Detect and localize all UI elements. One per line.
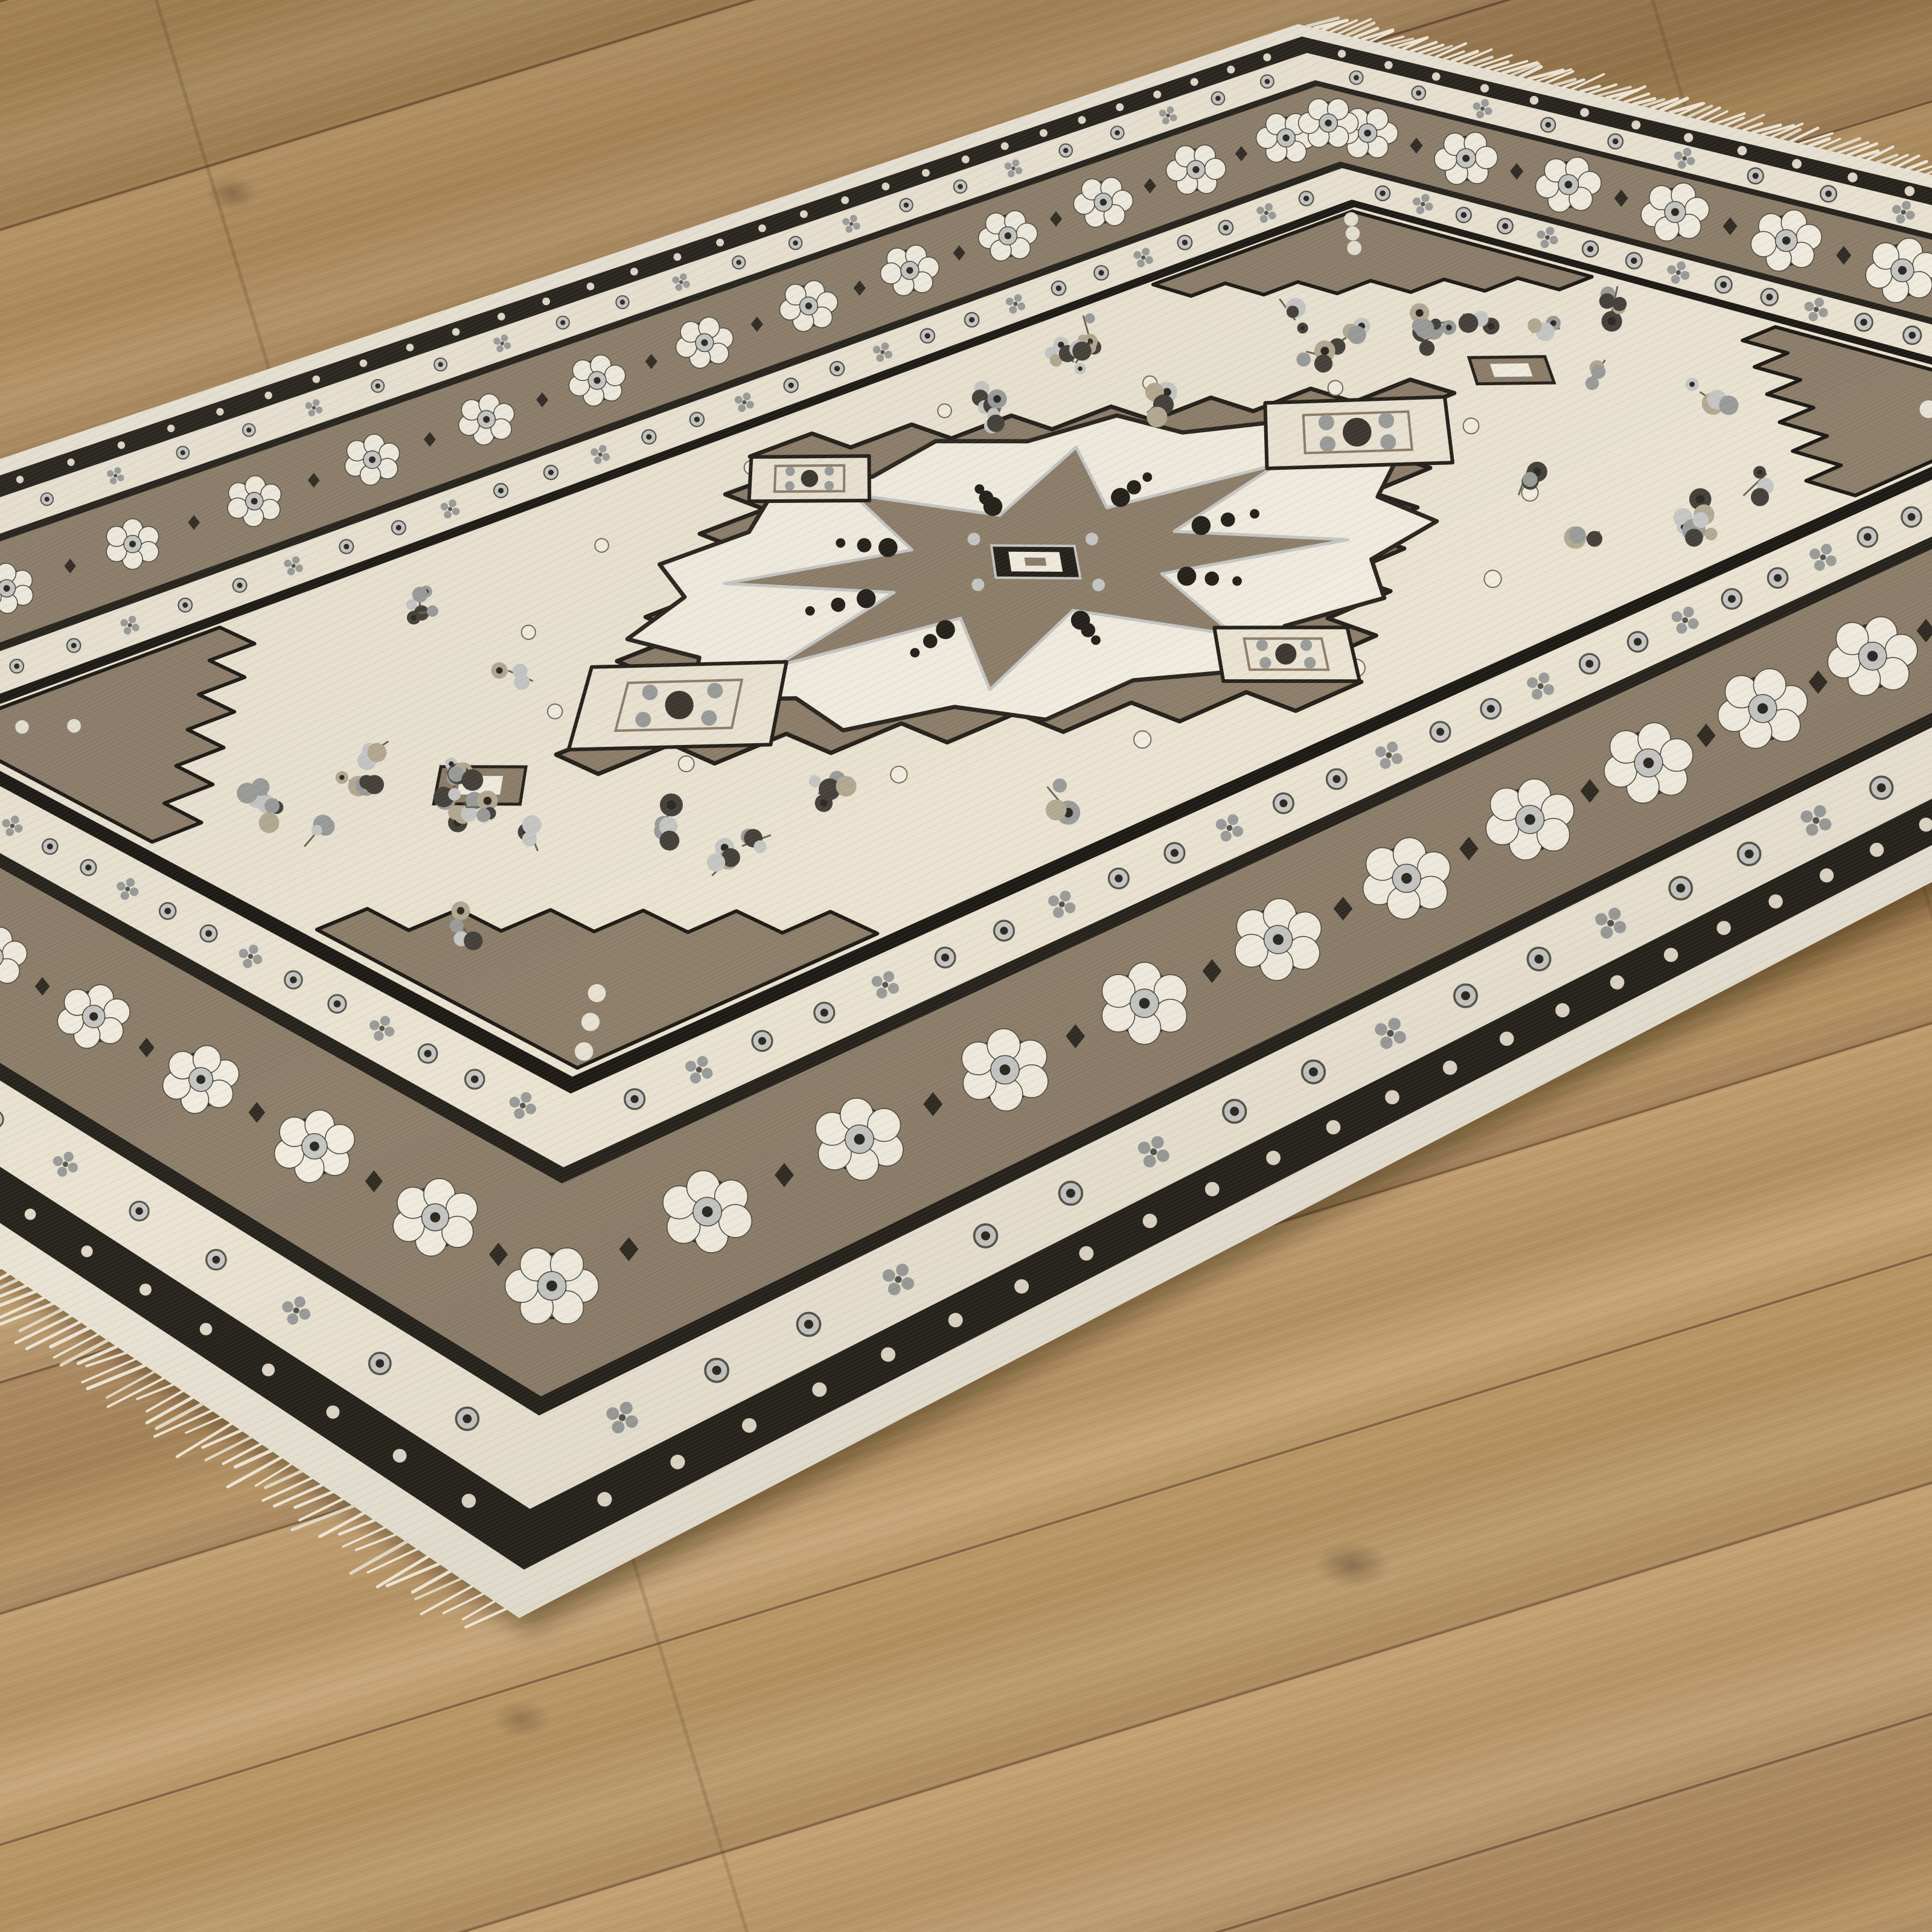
fringe-strand	[413, 1572, 450, 1592]
fringe-strand	[263, 1478, 312, 1500]
fringe-strand	[206, 1438, 251, 1460]
fringe-strand	[465, 1609, 505, 1627]
rug-pile-texture	[0, 24, 1932, 1618]
fringe-strand	[107, 1372, 154, 1398]
fringe-strand	[421, 1586, 472, 1614]
scene	[0, 0, 1932, 1932]
fringe-strand	[78, 1346, 117, 1363]
fringe-strand	[1829, 139, 1860, 151]
fringe-strand	[51, 1328, 89, 1347]
fringe-strand	[274, 1485, 322, 1506]
fringe-strand	[86, 1353, 126, 1366]
oriental-area-rug	[0, 0, 1932, 1932]
fringe-strand	[137, 1384, 173, 1399]
fringe-strand	[1907, 162, 1927, 169]
fringe-strand	[54, 1334, 98, 1358]
fringe-strand	[147, 1398, 192, 1423]
rug-shading	[0, 24, 1932, 1618]
